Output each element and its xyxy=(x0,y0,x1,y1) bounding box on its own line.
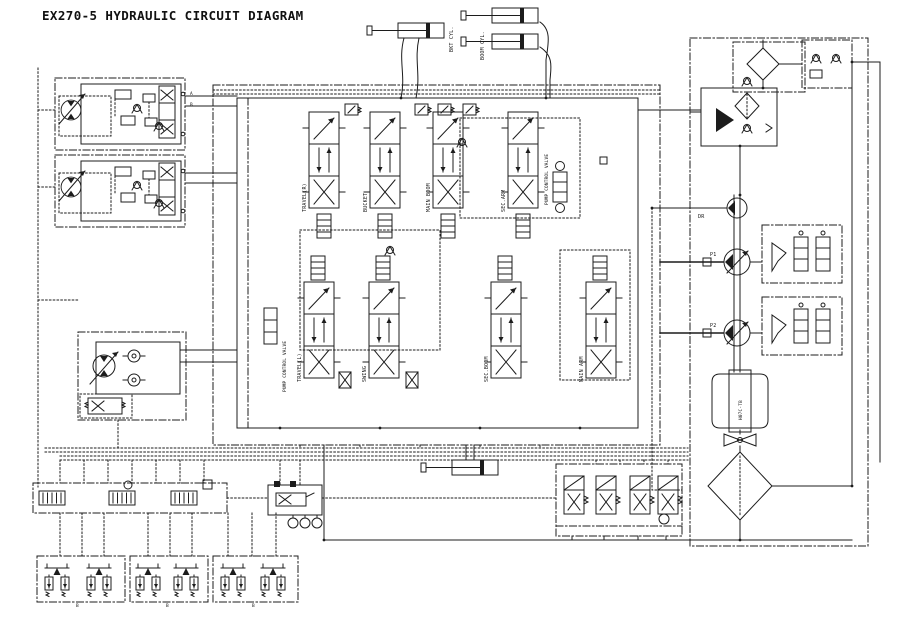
port-label-a: A xyxy=(190,91,193,97)
pump-regulator-2 xyxy=(762,297,842,355)
pilot-valve-block-1 xyxy=(37,556,125,602)
arm-cylinder xyxy=(421,460,498,475)
page-title: EX270-5 HYDRAULIC CIRCUIT DIAGRAM xyxy=(42,8,304,23)
spool-travel-left: TRAVEL(L) xyxy=(297,256,340,382)
main-pump-1 xyxy=(724,249,750,275)
spool-label-travel-left: TRAVEL(L) xyxy=(297,353,303,382)
spool-label-main-arm: MAIN ARM xyxy=(579,356,585,382)
boom-cylinder-label: BOOM CYL. xyxy=(480,31,486,60)
diagram-canvas: EX270-5 HYDRAULIC CIRCUIT DIAGRAM xyxy=(0,0,907,614)
spool-sec-boom: SEC.BOOM xyxy=(484,256,527,382)
return-filter-icon xyxy=(735,93,759,133)
pump-control-valve-left: PUMP CONTROL VALVE xyxy=(264,308,288,392)
main-control-valve: TRAVEL(R) BUCKET MAIN BOOM SEC.ARM PUMP … xyxy=(213,85,660,445)
port-label-p1: P1 xyxy=(710,252,716,258)
port-label-b3: B xyxy=(252,603,255,609)
spool-bucket: BUCKET xyxy=(363,112,406,238)
pilot-pump xyxy=(727,198,747,218)
right-section: P1 P2 DR H07C-TB xyxy=(690,38,868,546)
port-label-b1: B xyxy=(76,603,79,609)
spool-main-arm: MAIN ARM xyxy=(579,256,622,382)
hydraulic-circuit-page: EX270-5 HYDRAULIC CIRCUIT DIAGRAM xyxy=(0,0,907,614)
pump-control-valve-top: PUMP CONTROL VALVE xyxy=(544,154,567,213)
pump-control-valve-left-label: PUMP CONTROL VALVE xyxy=(282,341,288,392)
spool-sec-arm: SEC.ARM xyxy=(501,112,544,238)
pilot-valve-block-2 xyxy=(130,556,208,602)
port-label-b2: B xyxy=(166,603,169,609)
spool-label-main-boom: MAIN BOOM xyxy=(426,183,432,212)
spool-travel-right: TRAVEL(R) xyxy=(302,112,345,238)
oil-level-icon xyxy=(716,108,734,132)
hydraulic-tank xyxy=(701,88,777,146)
connection-lines xyxy=(38,22,880,556)
solenoid-valve-unit xyxy=(556,464,682,536)
boom-cylinders: BOOM CYL. xyxy=(461,8,538,60)
engine-model-label: H07C-TB xyxy=(738,400,744,420)
travel-motor-right-assembly xyxy=(55,78,185,150)
suction-strainer-icon xyxy=(708,452,772,520)
bucket-cylinder-label: BKT CYL. xyxy=(449,26,455,52)
bucket-cylinder: BKT CYL. xyxy=(367,23,455,52)
spool-label-travel-right: TRAVEL(R) xyxy=(302,183,308,212)
oil-cooler xyxy=(733,42,805,92)
swing-motor-assembly xyxy=(78,332,186,420)
spool-main-boom: MAIN BOOM xyxy=(426,112,469,238)
pilot-manifold-strip xyxy=(33,480,227,513)
engine: H07C-TB xyxy=(712,370,768,432)
port-label-dr: DR xyxy=(698,214,705,220)
pump-regulator-1 xyxy=(762,225,842,283)
spool-label-bucket: BUCKET xyxy=(363,193,369,212)
pilot-valve-block-3 xyxy=(213,556,298,602)
spool-label-sec-arm: SEC.ARM xyxy=(501,190,507,212)
travel-motor-left-assembly xyxy=(55,155,185,227)
spool-swing: SWING xyxy=(362,256,405,382)
port-label-b: B xyxy=(190,102,193,108)
spool-label-swing: SWING xyxy=(362,366,368,382)
port-label-p2: P2 xyxy=(710,323,716,329)
main-pump-2 xyxy=(724,320,750,346)
cooling-fan-icon xyxy=(724,434,756,446)
spool-label-sec-boom: SEC.BOOM xyxy=(484,356,490,382)
pump-control-valve-top-label: PUMP CONTROL VALVE xyxy=(544,154,550,205)
makeup-valve-box xyxy=(802,40,852,88)
